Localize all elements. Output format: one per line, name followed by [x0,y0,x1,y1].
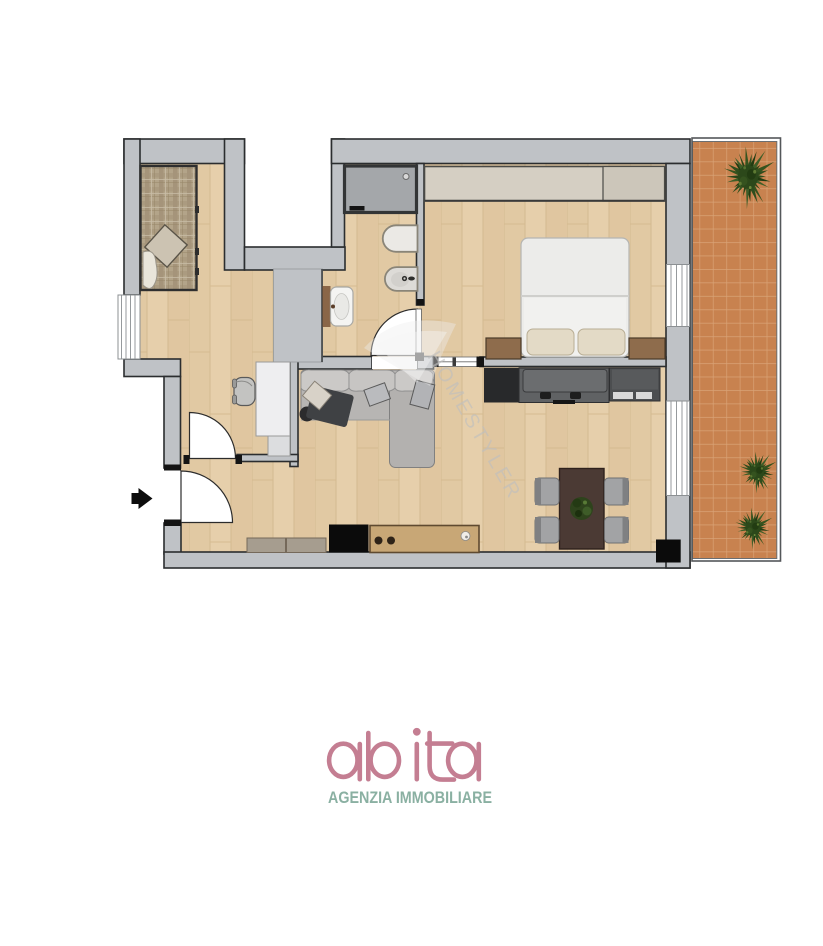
svg-text:AGENZIA IMMOBILIARE: AGENZIA IMMOBILIARE [328,788,492,807]
